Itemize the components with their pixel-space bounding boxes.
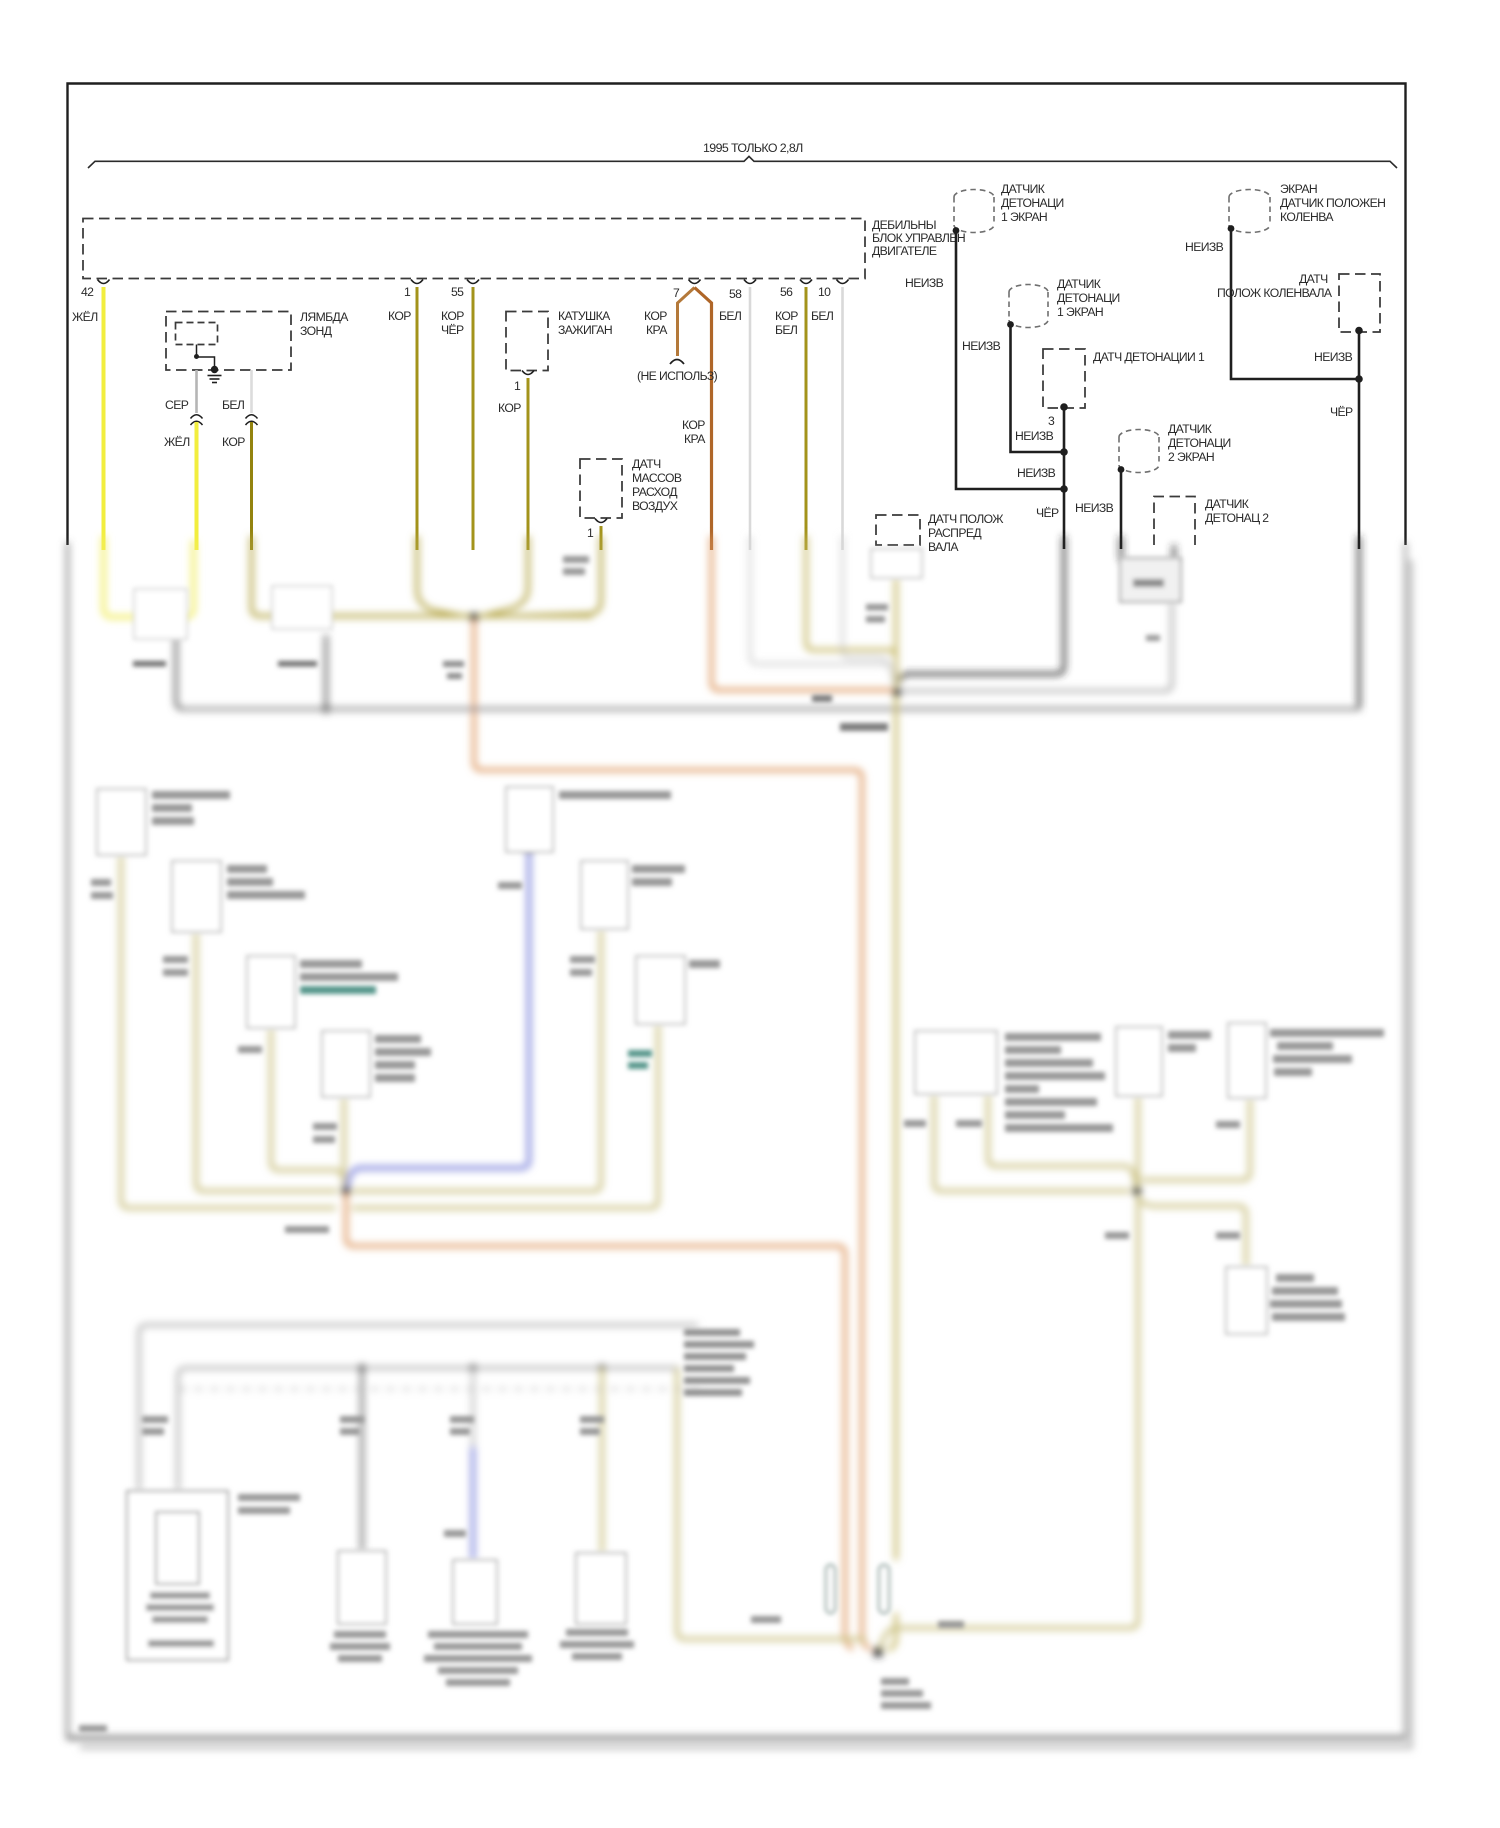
svg-text:10: 10	[818, 285, 831, 299]
svg-text:56: 56	[780, 285, 793, 299]
svg-text:1 ЭКРАН: 1 ЭКРАН	[1001, 210, 1047, 224]
svg-text:ДАТЧ ДЕТОНАЦИИ 1: ДАТЧ ДЕТОНАЦИИ 1	[1093, 350, 1205, 364]
svg-text:ДАТЧИК: ДАТЧИК	[1205, 497, 1250, 511]
svg-text:РАСПРЕД: РАСПРЕД	[928, 526, 982, 540]
svg-text:КОР: КОР	[498, 401, 521, 415]
svg-text:КРА: КРА	[684, 432, 706, 446]
svg-text:БЕЛ: БЕЛ	[222, 398, 244, 412]
svg-text:ДАТЧИК ПОЛОЖЕН: ДАТЧИК ПОЛОЖЕН	[1280, 196, 1385, 210]
svg-text:ДАТЧИК: ДАТЧИК	[1168, 422, 1213, 436]
svg-text:КОР: КОР	[388, 309, 411, 323]
svg-text:КОЛЕНВА: КОЛЕНВА	[1280, 210, 1334, 224]
svg-text:РАСХОД: РАСХОД	[632, 485, 678, 499]
svg-text:3: 3	[1048, 414, 1055, 428]
svg-text:ДВИГАТЕЛЕ: ДВИГАТЕЛЕ	[872, 244, 937, 258]
svg-text:БЕЛ: БЕЛ	[811, 309, 833, 323]
svg-text:ЖЁЛ: ЖЁЛ	[164, 435, 190, 449]
svg-text:ДАТЧ ПОЛОЖ: ДАТЧ ПОЛОЖ	[928, 512, 1004, 526]
svg-text:КАТУШКА: КАТУШКА	[558, 309, 611, 323]
svg-text:ДАТЧ: ДАТЧ	[1299, 272, 1328, 286]
svg-text:НЕИЗВ: НЕИЗВ	[905, 276, 944, 290]
svg-text:БЕЛ: БЕЛ	[775, 323, 797, 337]
svg-text:ДАТЧИК: ДАТЧИК	[1057, 277, 1102, 291]
svg-text:ЧЁР: ЧЁР	[441, 323, 464, 337]
svg-text:(НЕ ИСПОЛЬЗ): (НЕ ИСПОЛЬЗ)	[637, 369, 718, 383]
svg-text:КОР: КОР	[644, 309, 667, 323]
svg-text:СЕР: СЕР	[165, 398, 189, 412]
svg-text:ЭКРАН: ЭКРАН	[1280, 182, 1317, 196]
svg-text:58: 58	[729, 287, 742, 301]
svg-text:НЕИЗВ: НЕИЗВ	[962, 339, 1001, 353]
svg-text:МАССОВ: МАССОВ	[632, 471, 682, 485]
svg-text:2 ЭКРАН: 2 ЭКРАН	[1168, 450, 1214, 464]
svg-text:КОР: КОР	[441, 309, 464, 323]
svg-text:42: 42	[81, 285, 94, 299]
svg-text:ЧЁР: ЧЁР	[1330, 405, 1353, 419]
svg-text:НЕИЗВ: НЕИЗВ	[1075, 501, 1114, 515]
svg-text:БЕЛ: БЕЛ	[719, 309, 741, 323]
svg-text:ДАТЧИК: ДАТЧИК	[1001, 182, 1046, 196]
svg-text:1 ЭКРАН: 1 ЭКРАН	[1057, 305, 1103, 319]
svg-text:ДЕТОНАЦИ: ДЕТОНАЦИ	[1001, 196, 1064, 210]
svg-text:ДЕТОНАЦИ: ДЕТОНАЦИ	[1057, 291, 1120, 305]
svg-text:КРА: КРА	[646, 323, 668, 337]
svg-text:ЗОНД: ЗОНД	[300, 324, 333, 338]
svg-text:7: 7	[673, 286, 680, 300]
svg-text:ВАЛА: ВАЛА	[928, 540, 959, 554]
svg-text:НЕИЗВ: НЕИЗВ	[1185, 240, 1224, 254]
svg-text:ДЕБИЛЬНЫ: ДЕБИЛЬНЫ	[872, 218, 936, 232]
svg-text:1: 1	[587, 526, 594, 540]
svg-text:КОР: КОР	[775, 309, 798, 323]
svg-text:НЕИЗВ: НЕИЗВ	[1314, 350, 1353, 364]
svg-text:1995 ТОЛЬКО 2,8Л: 1995 ТОЛЬКО 2,8Л	[703, 141, 803, 155]
svg-text:55: 55	[451, 285, 464, 299]
svg-text:1: 1	[404, 285, 411, 299]
svg-text:ПОЛОЖ КОЛЕНВАЛА: ПОЛОЖ КОЛЕНВАЛА	[1217, 286, 1333, 300]
svg-text:ДЕТОНАЦ 2: ДЕТОНАЦ 2	[1205, 511, 1269, 525]
svg-text:1: 1	[514, 379, 521, 393]
svg-text:ЧЁР: ЧЁР	[1036, 506, 1059, 520]
svg-text:ДЕТОНАЦИ: ДЕТОНАЦИ	[1168, 436, 1231, 450]
svg-text:ЖЁЛ: ЖЁЛ	[72, 310, 98, 324]
svg-text:БЛОК УПРАВЛЕН: БЛОК УПРАВЛЕН	[872, 231, 965, 245]
svg-text:НЕИЗВ: НЕИЗВ	[1015, 429, 1054, 443]
svg-text:НЕИЗВ: НЕИЗВ	[1017, 466, 1056, 480]
svg-text:КОР: КОР	[222, 435, 245, 449]
svg-text:ВОЗДУХ: ВОЗДУХ	[632, 499, 678, 513]
svg-text:ЗАЖИГАН: ЗАЖИГАН	[558, 323, 612, 337]
svg-text:КОР: КОР	[682, 418, 705, 432]
svg-text:ЛЯМБДА: ЛЯМБДА	[300, 310, 349, 324]
svg-text:ДАТЧ: ДАТЧ	[632, 457, 661, 471]
